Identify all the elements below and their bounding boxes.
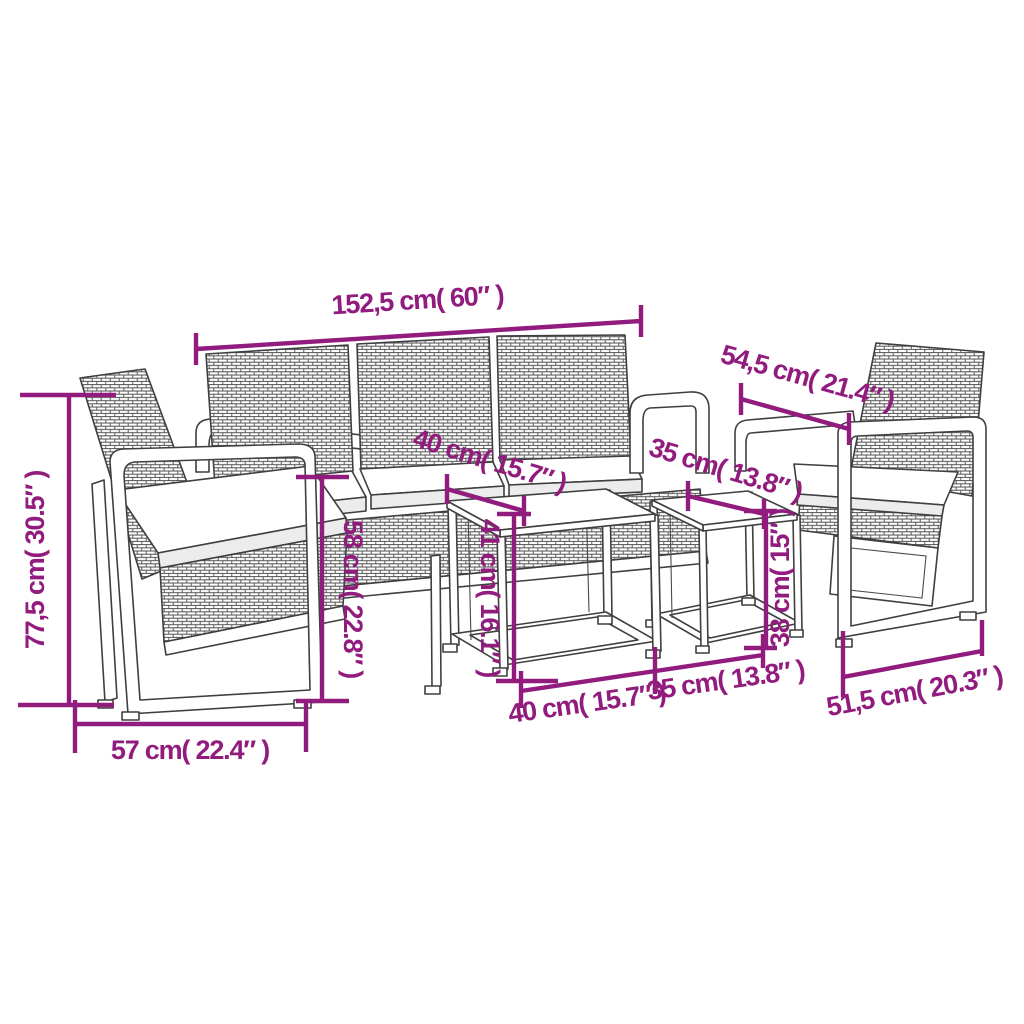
product-dimension-diagram: 152,5 cm( 60″ ) 54,5 cm( 21.4″ ) 77,5 cm… xyxy=(0,0,1024,1024)
dim-armchair-width-label: 57 cm( 22.4″ ) xyxy=(111,735,269,765)
sofa-back-panel xyxy=(497,335,631,461)
dim-table-large-height-label: 41 cm( 16.1″ ) xyxy=(475,519,505,677)
dim-table-small-height-label: 38 cm( 15″ ) xyxy=(765,509,795,647)
dim-overall-height-label: 77,5 cm( 30.5″ ) xyxy=(20,471,50,650)
dim-armchair-right-width-label: 51,5 cm( 20.3″ ) xyxy=(824,660,1005,722)
dim-seat-depth-label: 58 cm( 22.8″ ) xyxy=(338,520,368,678)
dimension-diagram-canvas: 152,5 cm( 60″ ) 54,5 cm( 21.4″ ) 77,5 cm… xyxy=(0,0,1024,1024)
dim-table-large-width-label: 40 cm( 15.7″ ) xyxy=(506,677,667,729)
dim-sofa-width-label: 152,5 cm( 60″ ) xyxy=(331,280,505,321)
sofa-back-panel xyxy=(206,345,353,486)
